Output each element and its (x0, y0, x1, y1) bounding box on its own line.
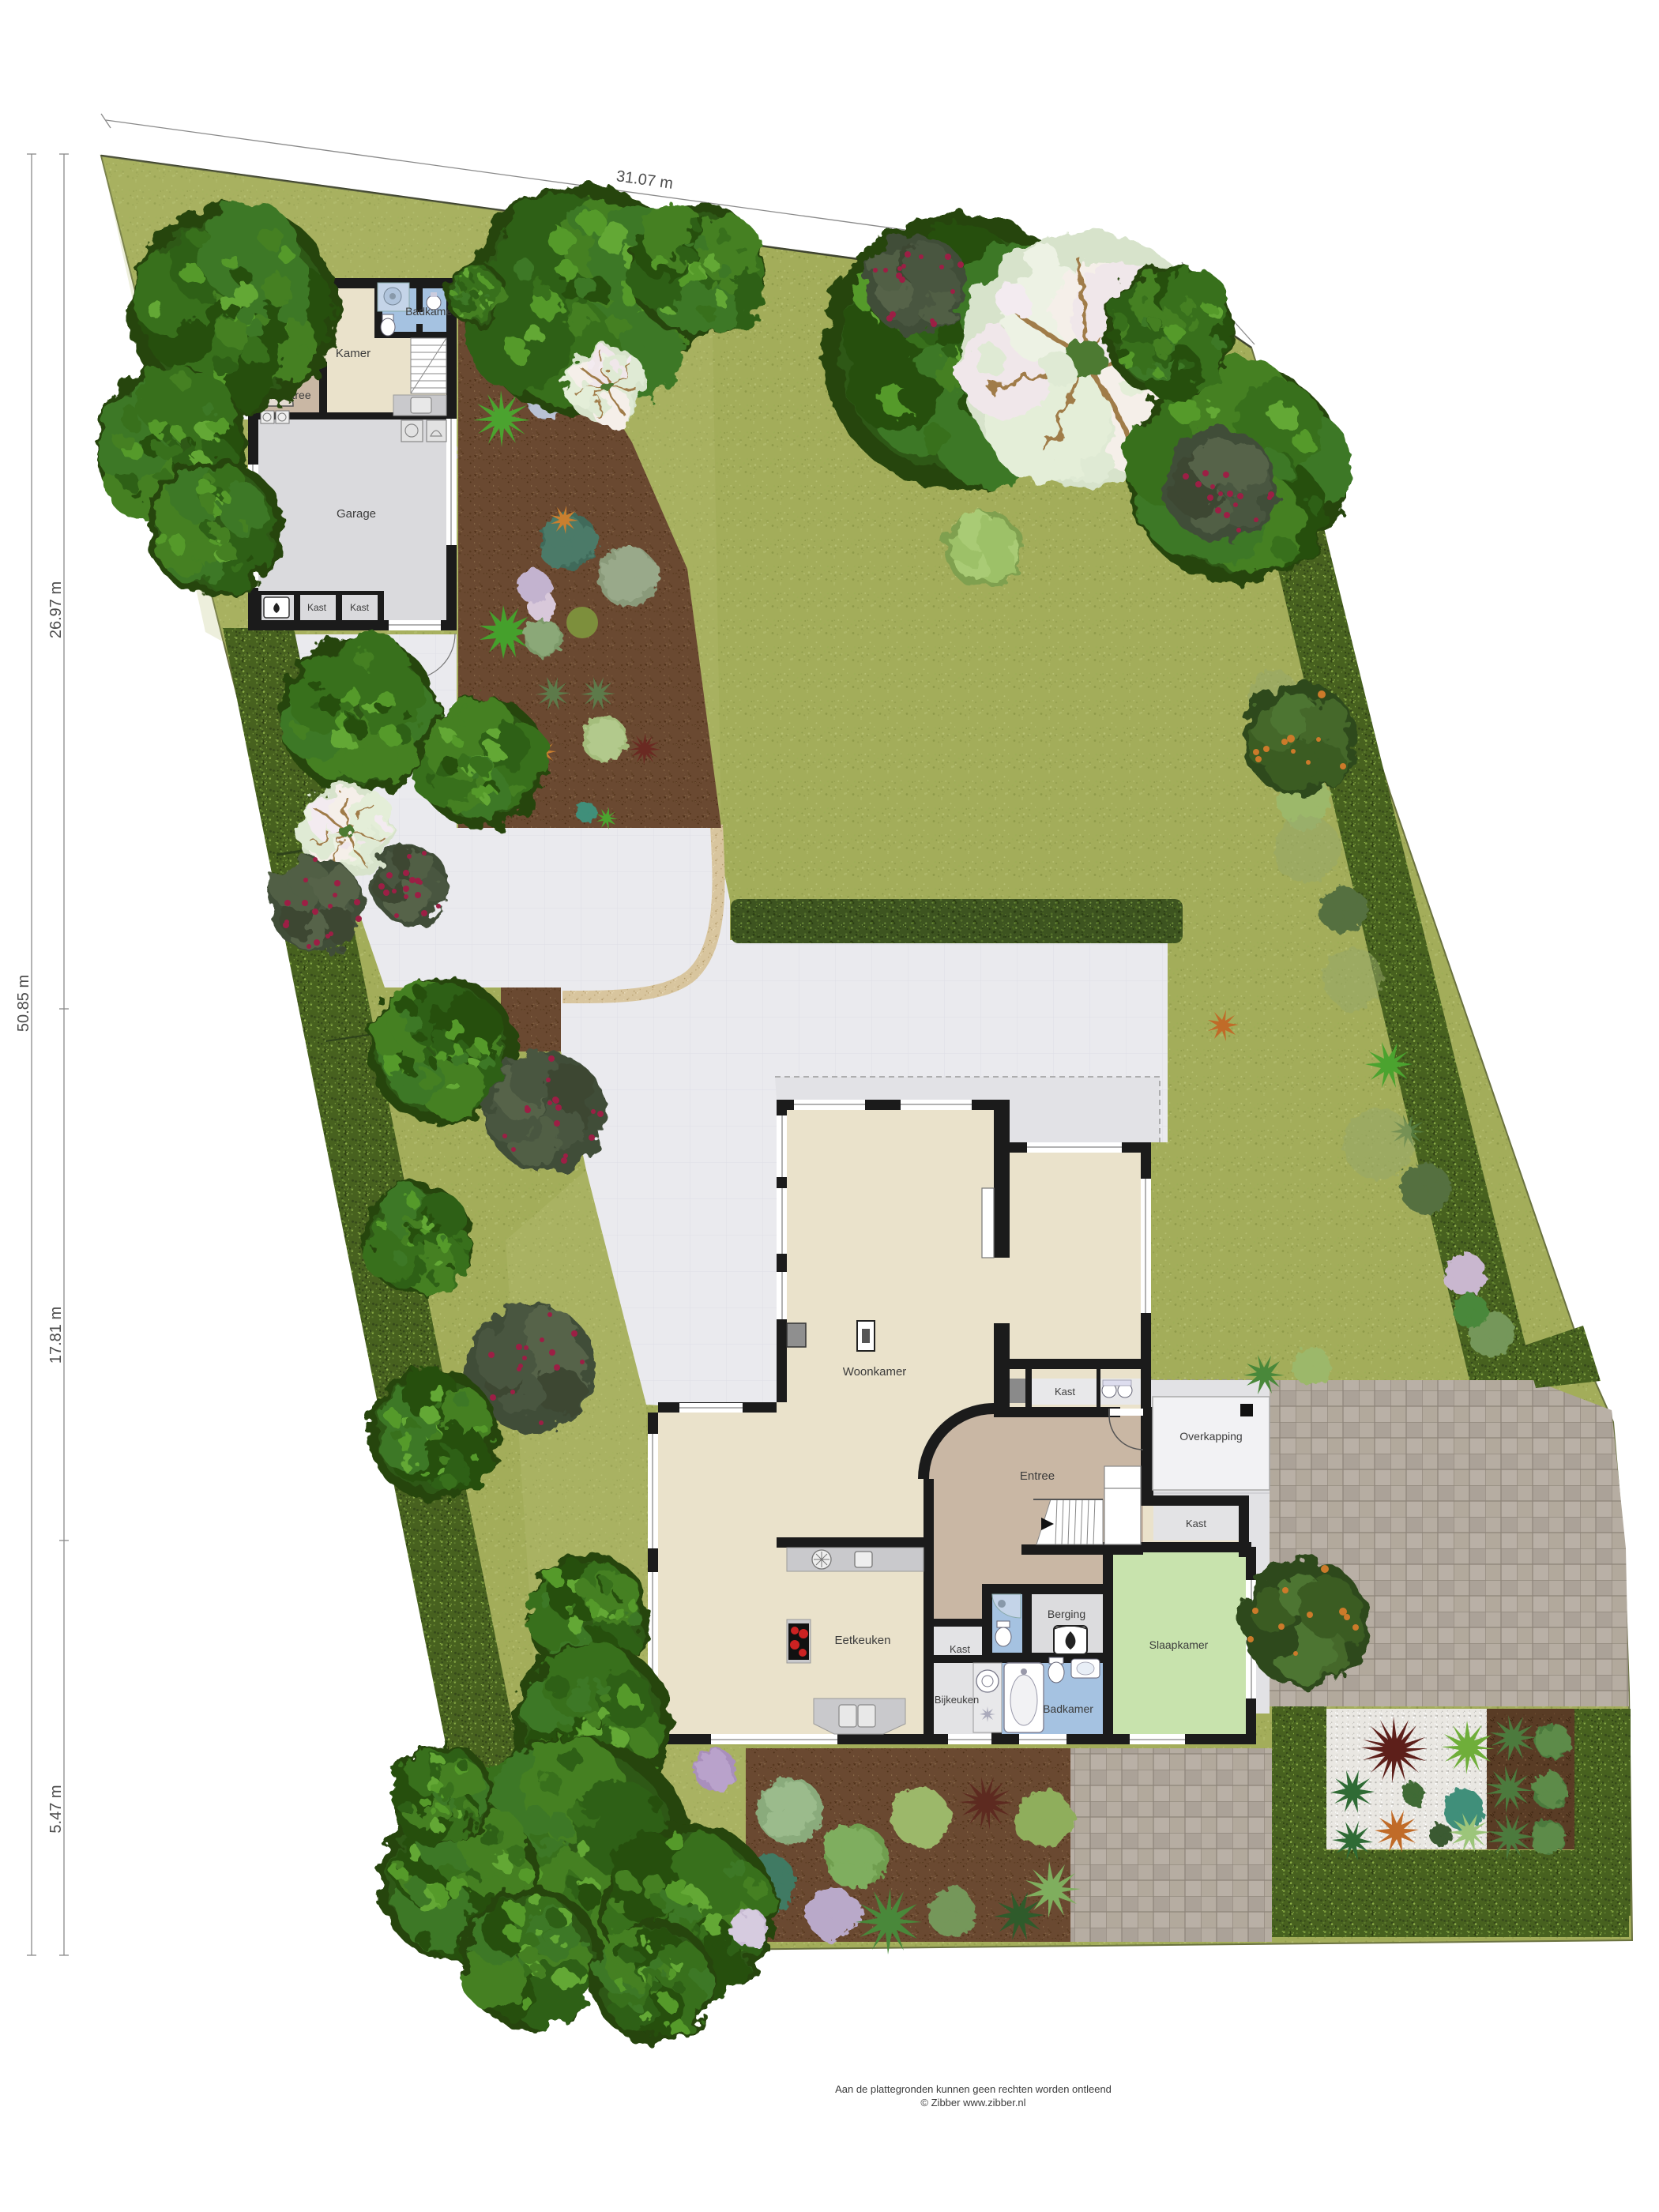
svg-text:Overkapping: Overkapping (1179, 1430, 1242, 1443)
svg-text:Aan de plattegronden kunnen ge: Aan de plattegronden kunnen geen rechten… (835, 2083, 1112, 2095)
svg-text:Kast: Kast (350, 602, 370, 613)
svg-text:Slaapkamer: Slaapkamer (1149, 1638, 1209, 1651)
svg-text:Kast: Kast (1055, 1386, 1075, 1398)
svg-text:5.47 m: 5.47 m (47, 1785, 65, 1833)
svg-text:17.81 m: 17.81 m (47, 1307, 65, 1364)
svg-text:Kast: Kast (307, 602, 327, 613)
svg-text:Berging: Berging (1048, 1608, 1085, 1620)
svg-text:Bijkeuken: Bijkeuken (935, 1694, 979, 1706)
svg-text:50.85 m: 50.85 m (15, 975, 32, 1032)
svg-text:26.97 m: 26.97 m (47, 581, 65, 638)
svg-text:© Zibber www.zibber.nl: © Zibber www.zibber.nl (920, 2097, 1025, 2109)
svg-text:Kast: Kast (1186, 1518, 1206, 1529)
svg-text:Garage: Garage (337, 507, 376, 521)
svg-text:Woonkamer: Woonkamer (843, 1365, 907, 1379)
svg-text:Kamer: Kamer (336, 347, 371, 360)
svg-text:Badkamer: Badkamer (1043, 1702, 1093, 1715)
svg-text:Entree: Entree (1020, 1469, 1055, 1483)
svg-text:Eetkeuken: Eetkeuken (835, 1634, 891, 1647)
svg-text:Kast: Kast (950, 1643, 970, 1655)
